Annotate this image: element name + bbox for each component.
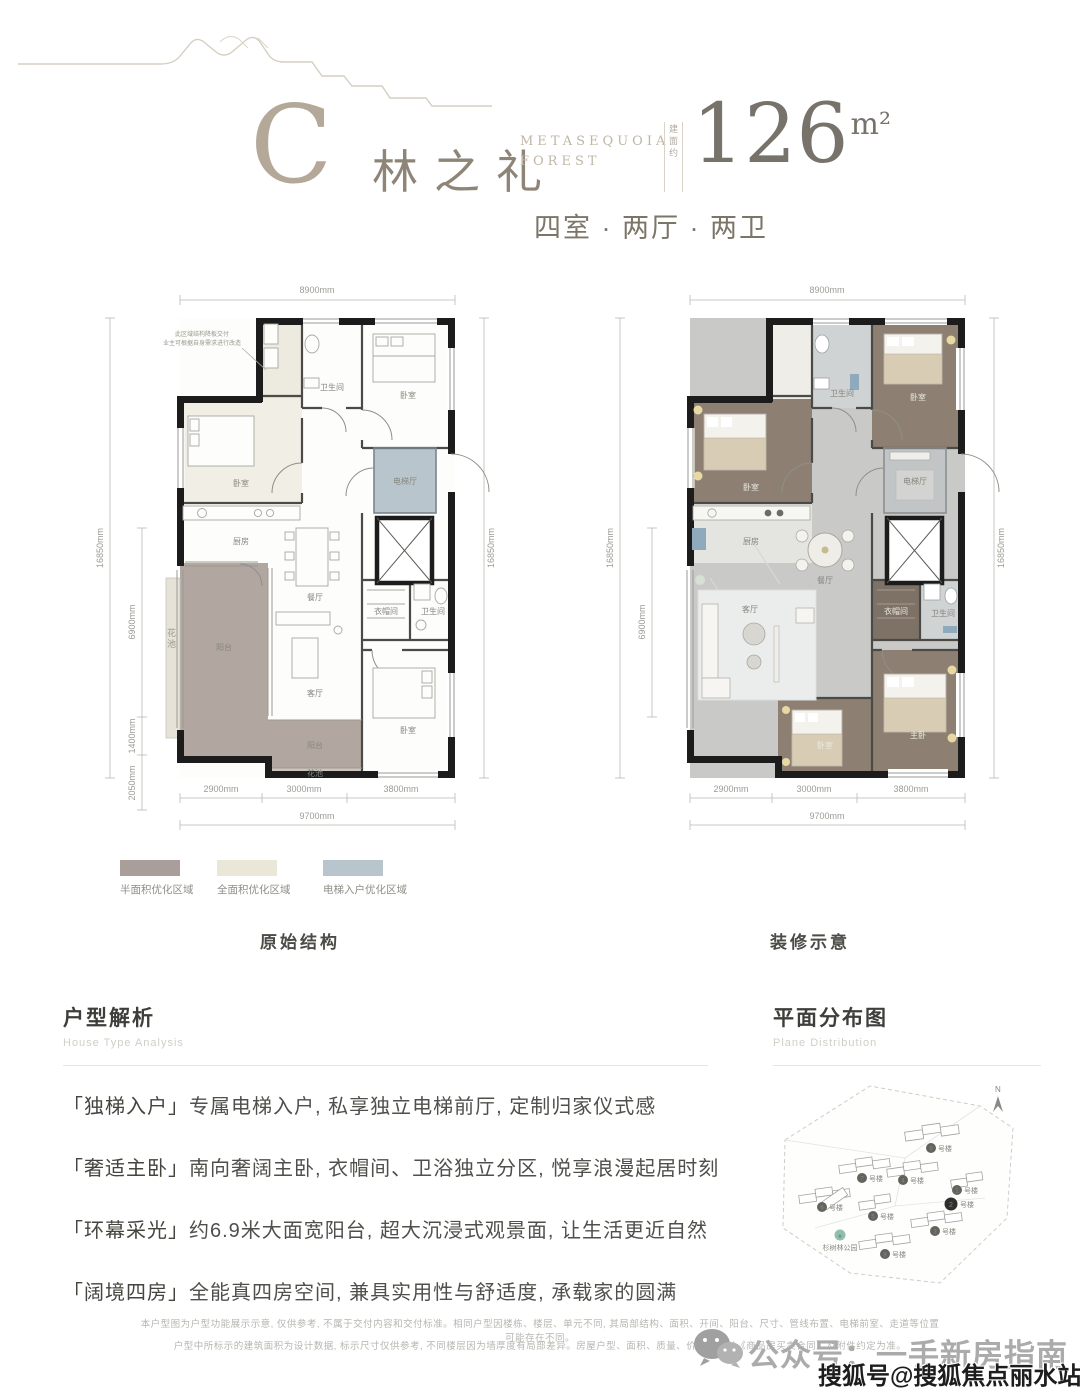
unit-name-en-line2: FOREST xyxy=(520,152,669,172)
distribution-subtitle: Plane Distribution xyxy=(773,1037,1053,1049)
analysis-item-1: 「独梯入户」专属电梯入户, 私享独立电梯前厅, 定制归家仪式感 xyxy=(63,1090,713,1119)
svg-text:号楼: 号楼 xyxy=(880,1212,894,1221)
dim-btotal: 9700mm xyxy=(809,811,844,821)
dim-right: 16850mm xyxy=(486,528,496,568)
legend-item-elevator-area: 电梯入户优化区域 xyxy=(323,860,473,897)
svg-text:卧室: 卧室 xyxy=(743,482,759,492)
svg-text:号楼: 号楼 xyxy=(964,1186,978,1195)
svg-text:厨房: 厨房 xyxy=(233,536,249,546)
svg-text:厨房: 厨房 xyxy=(743,536,759,546)
dim-b3: 3800mm xyxy=(383,784,418,794)
legend-label-elevator-area: 电梯入户优化区域 xyxy=(323,882,473,897)
svg-text:号楼: 号楼 xyxy=(960,1200,974,1209)
analysis-tag-1: 「独梯入户」 xyxy=(63,1096,189,1118)
unit-name-en: METASEQUOIA FOREST xyxy=(520,132,669,172)
area-unit: m² xyxy=(851,107,891,142)
svg-text:卫生间: 卫生间 xyxy=(931,608,955,618)
site-plan: N 9号楼 7号楼 4号楼 6号楼 1号楼 2号楼 5号楼 3号楼 8号楼 ♣杉… xyxy=(755,1078,1075,1308)
analysis-item-2: 「奢适主卧」南向奢阔主卧, 衣帽间、卫浴独立分区, 悦享浪漫起居时刻 xyxy=(63,1152,713,1181)
svg-text:客厅: 客厅 xyxy=(307,688,323,698)
svg-text:2: 2 xyxy=(949,1202,953,1209)
svg-text:电梯厅: 电梯厅 xyxy=(903,476,927,486)
floorplan-poster: C 林之礼 METASEQUOIA FOREST 建面约 126m² 四室 · … xyxy=(0,0,1080,1396)
svg-text:卫生间: 卫生间 xyxy=(320,382,344,392)
legend-swatch-full-area xyxy=(217,860,277,876)
floorplan-original: 8900mm 16850mm 6900mm 1400mm 2050mm 1685… xyxy=(90,278,510,848)
flower-west-label: 花池 xyxy=(165,628,178,650)
distribution-divider xyxy=(773,1065,1041,1066)
analysis-item-3: 「环幕采光」约6.9米大面宽阳台, 超大沉浸式观景面, 让生活更近自然 xyxy=(63,1214,713,1243)
dim-left: 16850mm xyxy=(95,528,105,568)
caption-original-structure: 原始结构 xyxy=(90,928,510,953)
svg-text:衣帽间: 衣帽间 xyxy=(374,606,398,616)
svg-text:客厅: 客厅 xyxy=(742,604,758,614)
dim-left-1400: 1400mm xyxy=(127,718,137,753)
dim-b2: 3000mm xyxy=(286,784,321,794)
floorplan-decorated: 8900mm 16850mm 6900mm 16850mm 2900mm 300… xyxy=(600,278,1020,848)
svg-text:号楼: 号楼 xyxy=(938,1144,952,1153)
svg-text:卧室: 卧室 xyxy=(910,392,926,402)
dim-top: 8900mm xyxy=(299,285,334,295)
svg-text:♣: ♣ xyxy=(838,1234,842,1240)
compass: N xyxy=(993,1085,1003,1112)
svg-text:阳台: 阳台 xyxy=(216,642,232,652)
analysis-item-4: 「阔境四房」全能真四房空间, 兼具实用性与舒适度, 承载家的圆满 xyxy=(63,1276,713,1305)
analysis-text-2: 南向奢阔主卧, 衣帽间、卫浴独立分区, 悦享浪漫起居时刻 xyxy=(189,1158,719,1180)
distribution-section: 平面分布图 Plane Distribution xyxy=(773,1002,1053,1066)
dim-left-2050: 2050mm xyxy=(127,765,137,800)
svg-text:号楼: 号楼 xyxy=(910,1176,924,1185)
dim-left-6900: 6900mm xyxy=(127,604,137,639)
svg-text:花池: 花池 xyxy=(307,768,323,778)
svg-text:衣帽间: 衣帽间 xyxy=(884,606,908,616)
analysis-tag-2: 「奢适主卧」 xyxy=(63,1158,189,1180)
dim-left-6900: 6900mm xyxy=(637,604,647,639)
svg-text:卧室: 卧室 xyxy=(233,478,249,488)
sohu-watermark: 搜狐号@搜狐焦点丽水站 xyxy=(818,1356,1080,1391)
svg-text:卫生间: 卫生间 xyxy=(830,388,854,398)
wechat-icon xyxy=(692,1326,744,1372)
svg-text:电梯厅: 电梯厅 xyxy=(393,476,417,486)
dim-left: 16850mm xyxy=(605,528,615,568)
analysis-tag-3: 「环幕采光」 xyxy=(63,1220,189,1242)
unit-letter: C xyxy=(250,92,333,200)
compass-n: N xyxy=(995,1085,1001,1094)
dim-b1: 2900mm xyxy=(203,784,238,794)
svg-text:号楼: 号楼 xyxy=(892,1250,906,1259)
svg-text:阳台: 阳台 xyxy=(307,740,323,750)
svg-text:号楼: 号楼 xyxy=(869,1174,883,1183)
svg-text:号楼: 号楼 xyxy=(829,1203,843,1212)
park-label: 杉树林公园 xyxy=(823,1243,858,1252)
svg-text:餐厅: 餐厅 xyxy=(817,576,833,585)
plan-note-line2: 业主可根据自身需求进行改造 xyxy=(163,339,241,347)
svg-text:号楼: 号楼 xyxy=(942,1227,956,1236)
legend-swatch-half-area xyxy=(120,860,180,876)
svg-text:主卧: 主卧 xyxy=(910,730,926,740)
svg-text:卫生间: 卫生间 xyxy=(421,606,445,616)
dim-b3: 3800mm xyxy=(893,784,928,794)
dim-b1: 2900mm xyxy=(713,784,748,794)
distribution-title: 平面分布图 xyxy=(773,1002,1053,1032)
analysis-tag-4: 「阔境四房」 xyxy=(63,1282,189,1304)
caption-decorated: 装修示意 xyxy=(600,928,1020,953)
plan-note-line1: 此区域结构降板交付 xyxy=(175,330,229,338)
dim-b2: 3000mm xyxy=(796,784,831,794)
area-value: 126 xyxy=(692,87,849,182)
dim-top: 8900mm xyxy=(809,285,844,295)
area-prefix: 建面约 xyxy=(664,122,683,192)
analysis-text-1: 专属电梯入户, 私享独立电梯前厅, 定制归家仪式感 xyxy=(189,1096,656,1118)
svg-text:餐厅: 餐厅 xyxy=(307,593,323,602)
analysis-subtitle: House Type Analysis xyxy=(63,1037,713,1049)
analysis-divider xyxy=(63,1065,708,1066)
dim-right: 16850mm xyxy=(996,528,1006,568)
area-figure: 126m² xyxy=(692,94,891,176)
analysis-text-3: 约6.9米大面宽阳台, 超大沉浸式观景面, 让生活更近自然 xyxy=(189,1220,708,1242)
dim-btotal: 9700mm xyxy=(299,811,334,821)
svg-text:卧室: 卧室 xyxy=(817,740,833,750)
legend-swatch-elevator-area xyxy=(323,860,383,876)
analysis-section: 户型解析 House Type Analysis 「独梯入户」专属电梯入户, 私… xyxy=(63,1002,713,1305)
layout-summary: 四室 · 两厅 · 两卫 xyxy=(534,206,768,245)
svg-text:卧室: 卧室 xyxy=(400,725,416,735)
svg-text:卧室: 卧室 xyxy=(400,390,416,400)
unit-name-en-line1: METASEQUOIA xyxy=(520,132,669,152)
analysis-title: 户型解析 xyxy=(63,1002,713,1032)
analysis-text-4: 全能真四房空间, 兼具实用性与舒适度, 承载家的圆满 xyxy=(189,1282,677,1304)
